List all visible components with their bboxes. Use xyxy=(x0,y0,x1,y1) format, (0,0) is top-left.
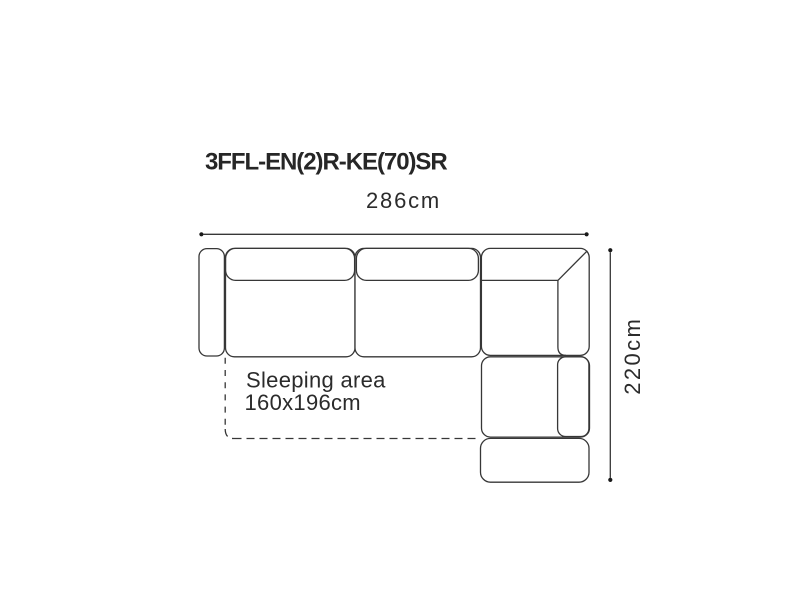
svg-text:Sleeping area: Sleeping area xyxy=(246,368,386,393)
svg-text:220cm: 220cm xyxy=(620,317,645,395)
svg-text:3FFL-EN(2)R-KE(70)SR: 3FFL-EN(2)R-KE(70)SR xyxy=(205,149,447,176)
svg-text:160x196cm: 160x196cm xyxy=(245,390,361,415)
svg-text:286cm: 286cm xyxy=(366,188,441,213)
